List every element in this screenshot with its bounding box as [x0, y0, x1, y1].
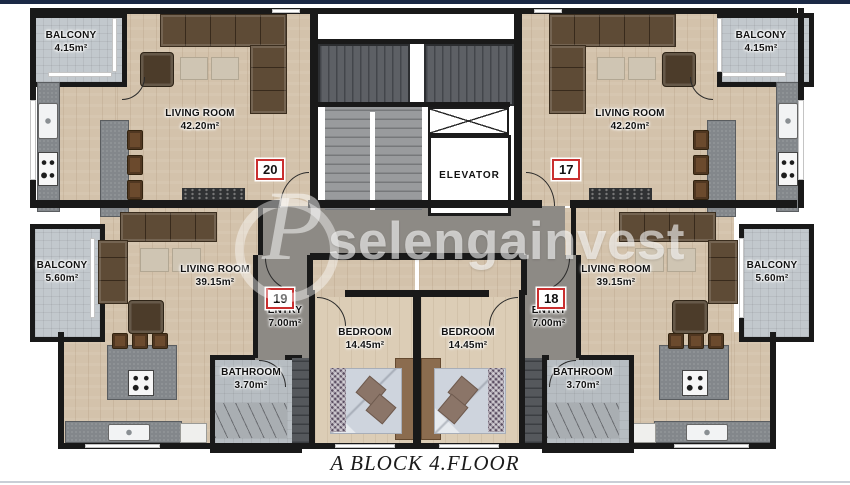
tv-unit	[589, 188, 652, 200]
sink-icon	[686, 424, 728, 441]
elevator-label: ELEVATOR	[439, 170, 500, 181]
bar-chair	[152, 333, 168, 349]
wall	[576, 255, 581, 358]
sofa	[98, 240, 128, 304]
balcony-tr-door-window	[722, 72, 786, 77]
wall	[571, 206, 576, 255]
plan-caption: A BLOCK 4.FLOOR	[0, 452, 850, 475]
room-area: 7.00m²	[268, 317, 303, 330]
armchair	[140, 52, 174, 87]
room-name: BATHROOM	[553, 366, 613, 379]
room-label-living-tl: LIVING ROOM 42.20m²	[165, 107, 234, 133]
window	[85, 444, 160, 448]
window	[30, 100, 36, 180]
room-name: LIVING ROOM	[165, 107, 234, 120]
wall	[258, 206, 263, 255]
balcony-mr-window	[739, 238, 744, 318]
room-area: 4.15m²	[736, 42, 787, 55]
room-name: LIVING ROOM	[180, 263, 249, 276]
bar-chair	[668, 333, 684, 349]
wall	[58, 332, 64, 443]
corridor-floor	[263, 206, 565, 255]
room-area: 14.45m²	[338, 339, 392, 352]
room-label-balcony-tr: BALCONY 4.15m²	[736, 29, 787, 55]
coffee-table	[597, 57, 625, 80]
unit-number-18: 18	[537, 288, 565, 309]
window	[674, 444, 749, 448]
sink-icon	[38, 103, 58, 139]
kitchen-counter	[776, 82, 799, 212]
room-label-bedroom-right: BEDROOM 14.45m²	[441, 326, 495, 352]
stove-icon	[38, 152, 58, 186]
wall	[307, 255, 313, 295]
wall	[58, 443, 776, 449]
coffee-table	[180, 57, 208, 80]
window	[439, 444, 499, 448]
room-area: 42.20m²	[165, 120, 234, 133]
wall	[30, 8, 797, 14]
sofa	[549, 14, 676, 47]
bed-blanket	[330, 368, 346, 432]
window	[272, 9, 300, 13]
room-label-living-br: LIVING ROOM 39.15m²	[581, 263, 650, 289]
stair-runner	[370, 112, 375, 210]
sofa	[549, 45, 586, 114]
coffee-table	[211, 57, 239, 80]
balcony-tr-window	[717, 18, 722, 72]
top-accent-bar	[0, 0, 850, 4]
room-name: BALCONY	[46, 29, 97, 42]
room-name: LIVING ROOM	[581, 263, 650, 276]
wall	[310, 253, 524, 260]
sofa	[160, 14, 287, 47]
stairs-upper-left	[318, 44, 410, 106]
coffee-table	[628, 57, 656, 80]
winder-stairs	[215, 403, 287, 438]
armchair	[128, 300, 164, 334]
balcony-tl-door-window	[48, 72, 112, 77]
floor-plan-page: ELEVATOR	[0, 0, 850, 485]
wall	[309, 290, 315, 443]
room-label-bedroom-left: BEDROOM 14.45m²	[338, 326, 392, 352]
fridge	[180, 423, 207, 443]
room-label-living-bl: LIVING ROOM 39.15m²	[180, 263, 249, 289]
room-area: 3.70m²	[553, 379, 613, 392]
wall	[308, 200, 542, 208]
sofa	[250, 45, 287, 114]
sofa	[619, 212, 716, 242]
balcony-ml-window	[90, 238, 95, 318]
wall	[519, 290, 525, 443]
room-name: BALCONY	[736, 29, 787, 42]
room-name: LIVING ROOM	[595, 107, 664, 120]
winder-stairs	[547, 403, 619, 438]
room-label-living-tr: LIVING ROOM 42.20m²	[595, 107, 664, 133]
sofa	[120, 212, 217, 242]
floor-plan: ELEVATOR	[28, 8, 806, 449]
room-area: 42.20m²	[595, 120, 664, 133]
sink-icon	[778, 103, 798, 139]
wall	[521, 255, 527, 295]
bar-chair	[112, 333, 128, 349]
room-name: BALCONY	[37, 259, 88, 272]
bar-chair	[127, 180, 143, 200]
room-area: 3.70m²	[221, 379, 281, 392]
stairs-upper-right	[424, 44, 514, 106]
room-label-balcony-mr: BALCONY 5.60m²	[747, 259, 798, 285]
room-area: 5.60m²	[747, 272, 798, 285]
bar-chair	[132, 333, 148, 349]
room-name: BEDROOM	[441, 326, 495, 339]
balcony-tl-window	[112, 18, 117, 72]
unit-number-19: 19	[266, 288, 294, 309]
wall	[30, 200, 280, 208]
coffee-table	[667, 248, 696, 272]
bar-chair	[693, 155, 709, 175]
elevator-shaft	[428, 107, 509, 135]
room-label-bathroom-left: BATHROOM 3.70m²	[221, 366, 281, 392]
room-label-bathroom-right: BATHROOM 3.70m²	[553, 366, 613, 392]
wall	[770, 332, 776, 443]
unit-number-17: 17	[552, 159, 580, 180]
sofa	[708, 240, 738, 304]
stove-icon	[778, 152, 798, 186]
room-name: BATHROOM	[221, 366, 281, 379]
window	[335, 444, 395, 448]
window	[798, 100, 804, 180]
bar-chair	[708, 333, 724, 349]
room-area: 4.15m²	[46, 42, 97, 55]
room-area: 39.15m²	[180, 276, 249, 289]
bottom-rule	[0, 481, 850, 483]
armchair	[672, 300, 708, 334]
unit-number-20: 20	[256, 159, 284, 180]
tv-unit	[182, 188, 245, 200]
wall	[413, 297, 421, 443]
stove-icon	[128, 370, 154, 396]
room-area: 39.15m²	[581, 276, 650, 289]
room-label-balcony-ml: BALCONY 5.60m²	[37, 259, 88, 285]
room-area: 5.60m²	[37, 272, 88, 285]
coffee-table	[140, 248, 169, 272]
bar-chair	[693, 180, 709, 200]
bar-chair	[127, 155, 143, 175]
bed-blanket	[488, 368, 504, 432]
room-name: BALCONY	[747, 259, 798, 272]
room-area: 14.45m²	[441, 339, 495, 352]
kitchen-counter	[37, 82, 60, 212]
room-area: 7.00m²	[532, 317, 567, 330]
window	[534, 9, 562, 13]
wall	[514, 8, 522, 206]
stove-icon	[682, 370, 708, 396]
bar-chair	[688, 333, 704, 349]
room-label-balcony-tl: BALCONY 4.15m²	[46, 29, 97, 55]
wall	[570, 200, 797, 208]
sink-icon	[108, 424, 150, 441]
room-name: BEDROOM	[338, 326, 392, 339]
bar-chair	[693, 130, 709, 150]
wall	[253, 255, 258, 358]
wall	[310, 8, 318, 206]
bar-chair	[127, 130, 143, 150]
wall	[345, 290, 489, 297]
